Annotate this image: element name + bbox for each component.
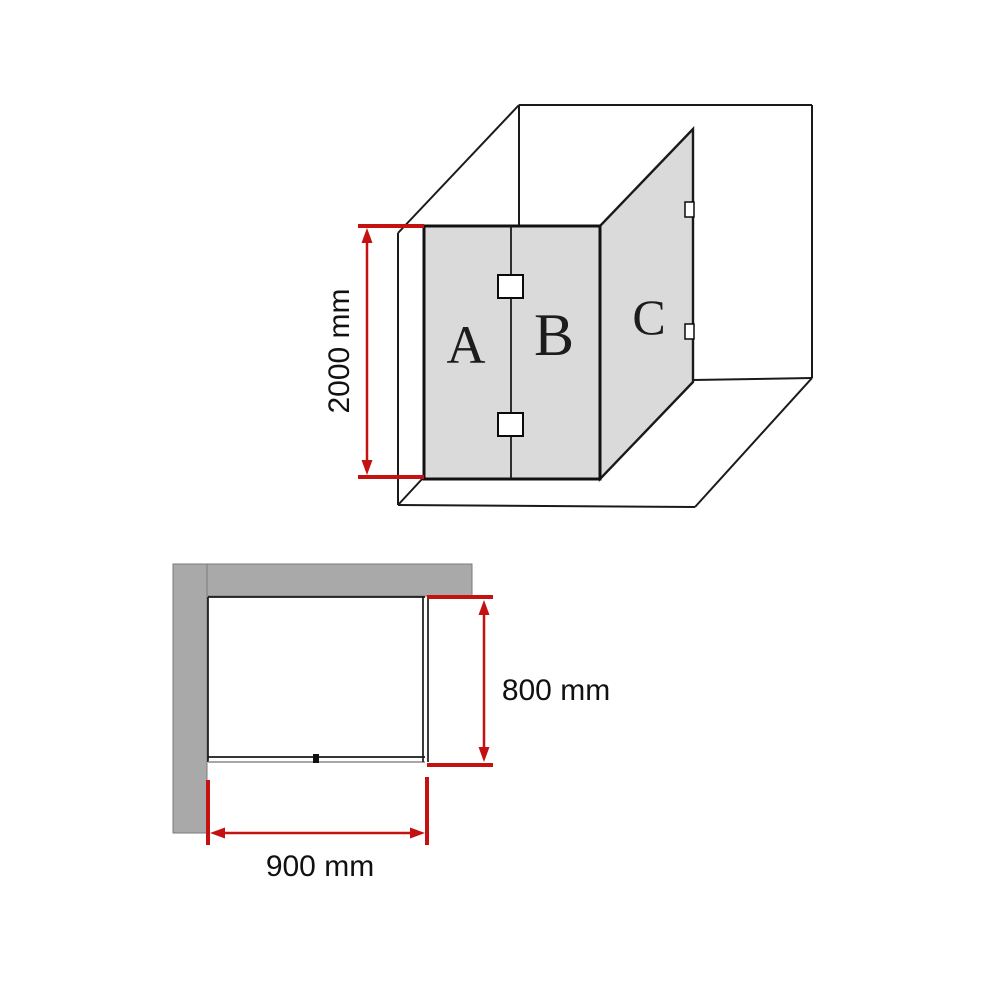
depth-dim-arrow-down — [479, 747, 490, 762]
hinge-bottom — [498, 413, 523, 436]
room-edge-floor-back-right — [693, 378, 812, 380]
width-dimension: 900 mm — [208, 777, 427, 883]
height-dim-arrow-up — [362, 228, 373, 243]
hinge-top — [498, 275, 523, 298]
room-edge-left-wall-bottom — [398, 478, 423, 505]
panel-b-label: B — [534, 302, 574, 368]
shower-screen-diagram: A B C 2000 mm — [0, 0, 1000, 1000]
plan-panel-ab-joint-mark — [313, 754, 319, 763]
room-edge-floor-right-diagonal — [695, 378, 812, 507]
wall-bracket-bottom — [685, 324, 694, 339]
perspective-view: A B C 2000 mm — [323, 105, 812, 507]
height-dim-label: 2000 mm — [323, 288, 356, 413]
width-dim-arrow-right — [410, 828, 425, 839]
depth-dimension: 800 mm — [427, 597, 610, 765]
width-dim-arrow-left — [210, 828, 225, 839]
depth-dim-arrow-up — [479, 600, 490, 615]
room-edge-top-left-diagonal — [398, 105, 519, 233]
height-dimension: 2000 mm — [323, 226, 424, 477]
panel-c-label: C — [632, 289, 665, 345]
plan-wall-left — [173, 564, 207, 833]
plan-wall-back — [173, 564, 472, 596]
diagram-canvas: A B C 2000 mm — [0, 0, 1000, 1000]
plan-view: 800 mm 900 mm — [173, 564, 610, 883]
plan-footprint — [208, 597, 428, 763]
depth-dim-label: 800 mm — [502, 674, 610, 707]
wall-bracket-top — [685, 202, 694, 217]
width-dim-label: 900 mm — [266, 850, 374, 883]
height-dim-arrow-down — [362, 460, 373, 475]
room-edge-floor-front — [398, 505, 695, 507]
panel-a-label: A — [447, 315, 486, 375]
